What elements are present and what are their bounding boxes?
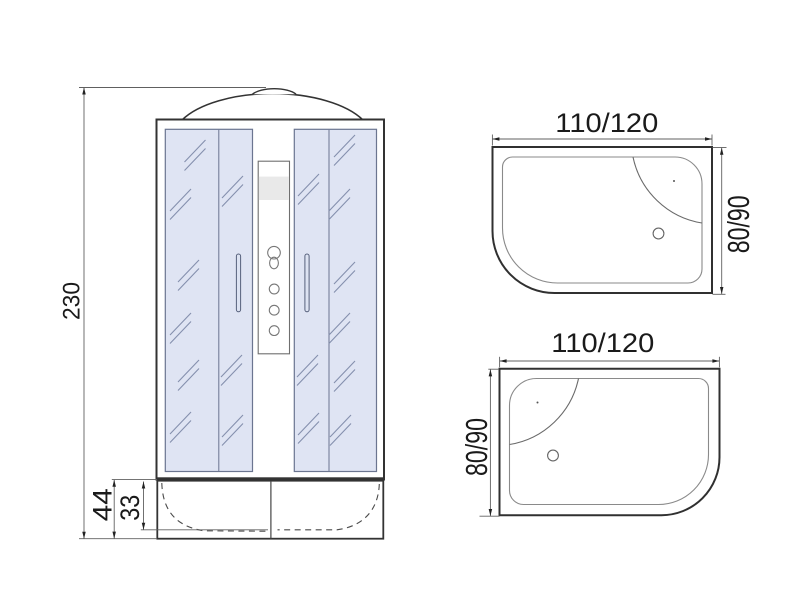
svg-text:110/120: 110/120 [555, 108, 658, 138]
svg-text:80/90: 80/90 [721, 195, 756, 253]
svg-text:110/120: 110/120 [551, 328, 654, 358]
svg-text:230: 230 [59, 282, 86, 320]
svg-text:33: 33 [115, 495, 145, 521]
svg-text:44: 44 [88, 488, 118, 521]
svg-text:80/90: 80/90 [459, 418, 494, 476]
